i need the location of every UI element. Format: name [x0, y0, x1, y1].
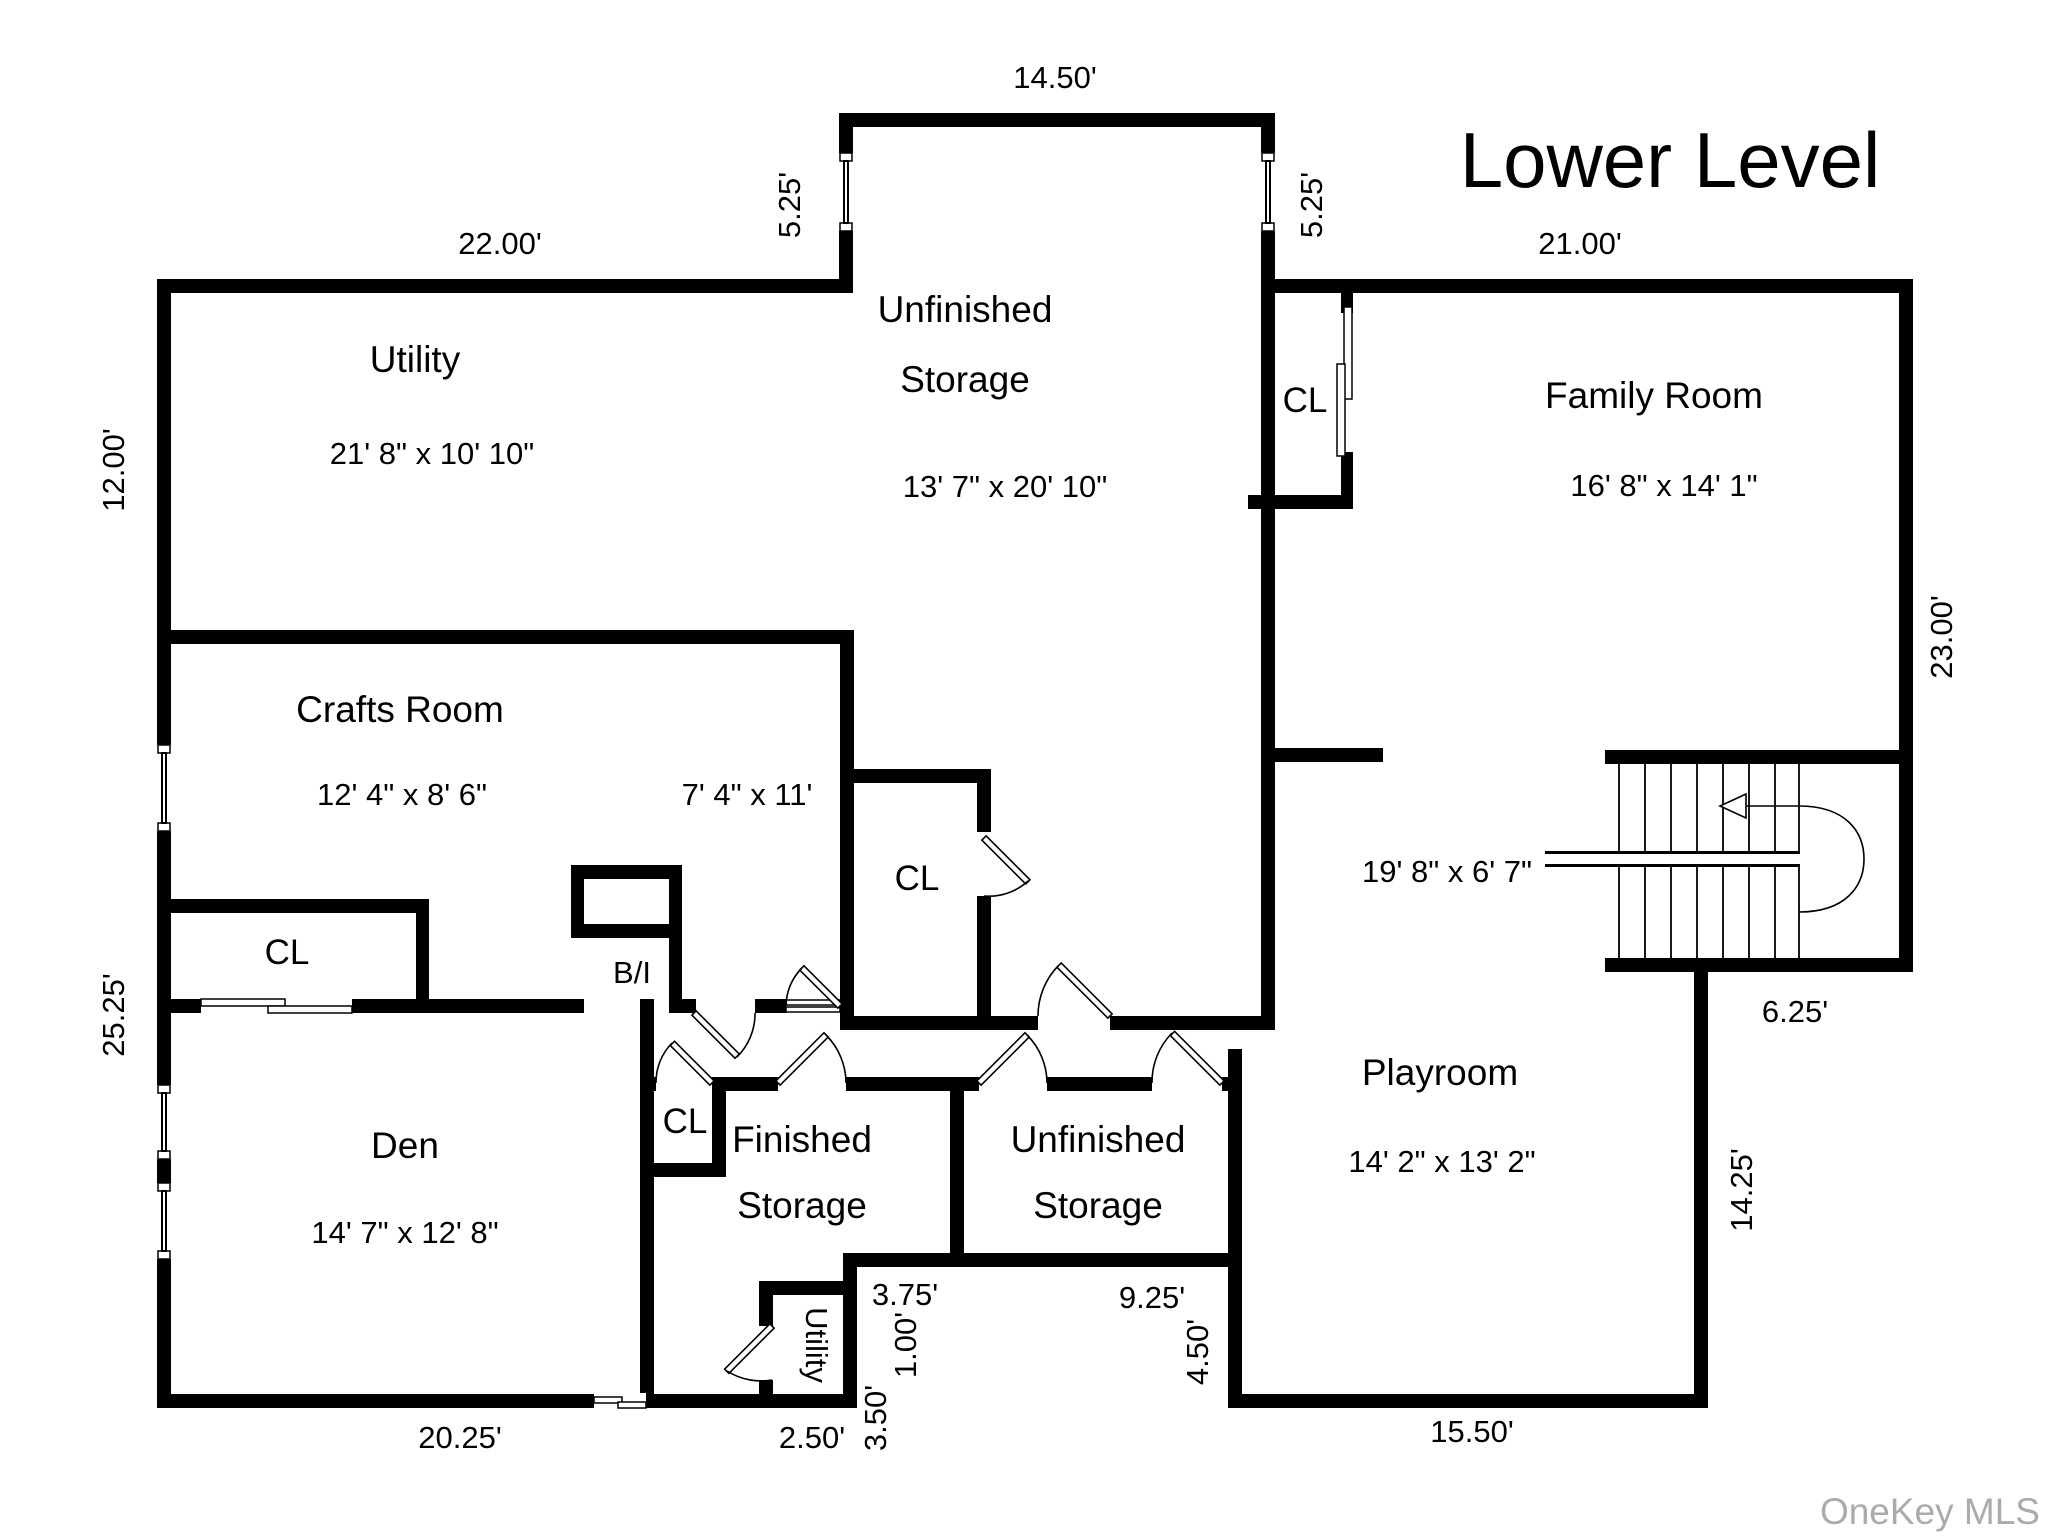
dim-storage-top: 14.50': [1013, 60, 1097, 95]
wall-utilcl-right: [843, 1281, 857, 1408]
wall-mid-vertical: [1261, 279, 1275, 1030]
area-7x11-dims: 7' 4" x 11': [682, 777, 813, 812]
staircase: [1545, 764, 1864, 958]
dim-storage-bottom-right: 9.25': [1119, 1280, 1185, 1315]
utility-room-label: Utility: [370, 339, 461, 380]
closet-family-label: CL: [1283, 381, 1328, 420]
door-unfinished-right: [1152, 1031, 1224, 1085]
finished-storage-label-2: Storage: [737, 1185, 867, 1226]
unfinished-storage-label-2: Storage: [1033, 1185, 1163, 1226]
dim-storage-side: 4.50': [1180, 1319, 1215, 1385]
door-finished-storage: [776, 1033, 846, 1085]
wall-stair-bottom: [1605, 958, 1913, 972]
storage-upper-label-2: Storage: [900, 359, 1030, 400]
wall-storage-divider: [950, 1077, 964, 1261]
stair-turn-curve: [1799, 806, 1864, 912]
dim-notch-right: 5.25': [1294, 172, 1329, 238]
storage-upper-label-1: Unfinished: [878, 289, 1053, 330]
wall-craftscl-top: [157, 899, 429, 913]
wall-dencl-right: [712, 1077, 726, 1177]
window-den-left-2: [156, 1183, 172, 1259]
page-title: Lower Level: [1460, 116, 1881, 204]
dim-stair-width: 6.25': [1762, 994, 1828, 1029]
wall-storage-top: [839, 113, 1275, 127]
family-room-label: Family Room: [1545, 375, 1763, 416]
dim-family-top: 21.00': [1538, 226, 1622, 261]
wall-bottom: [157, 1394, 857, 1408]
watermark: OneKey MLS: [1820, 1491, 2040, 1532]
wall-utilcl-left-a: [759, 1281, 773, 1326]
window-notch-left: [838, 153, 854, 231]
closet-mid-label: CL: [895, 859, 940, 898]
closet-crafts-label: CL: [265, 933, 310, 972]
window-den-left-1: [156, 1085, 172, 1159]
utility-closet-label: Utility: [799, 1307, 834, 1383]
wall-crafts-right: [840, 630, 854, 1030]
built-in-label: B/I: [613, 955, 651, 990]
window-crafts-left: [156, 745, 172, 831]
window-notch-right: [1260, 153, 1276, 231]
wall-playroom-right: [1694, 958, 1708, 1408]
hall-dims: 19' 8" x 6' 7": [1362, 854, 1532, 889]
wall-crafts-top: [157, 630, 854, 644]
wall-clmid-top: [840, 769, 991, 783]
storage-upper-dims: 13' 7" x 20' 10": [903, 469, 1107, 504]
slider-crafts-closet: [201, 998, 352, 1014]
slider-family-closet: [1337, 307, 1354, 456]
unfinished-storage-label-1: Unfinished: [1011, 1119, 1186, 1160]
family-room-dims: 16' 8" x 14' 1": [1570, 468, 1757, 503]
playroom-label: Playroom: [1362, 1052, 1518, 1093]
finished-storage-label-1: Finished: [732, 1119, 872, 1160]
door-hall: [1038, 963, 1112, 1018]
den-label: Den: [371, 1125, 439, 1166]
built-in-box: [571, 865, 682, 879]
door-utility-closet: [725, 1324, 774, 1381]
dim-den-bottom: 20.25': [418, 1420, 502, 1455]
wall-utilcl-top: [759, 1281, 857, 1295]
wall-craftscl-right: [416, 899, 429, 1013]
crafts-room-dims: 12' 4" x 8' 6": [317, 777, 487, 812]
wall-storage-low-right: [1228, 1049, 1242, 1408]
door-den: [692, 1011, 755, 1058]
dim-playroom-bottom: 15.50': [1430, 1414, 1514, 1449]
wall-dencl-bottom: [640, 1163, 726, 1177]
window-den-bottom: [594, 1393, 646, 1409]
wall-playroom-bottom: [1228, 1394, 1708, 1408]
dim-left-upper: 12.00': [96, 428, 131, 512]
closet-den-label: CL: [663, 1102, 708, 1141]
door-mid-closet: [982, 836, 1030, 896]
door-unfinished-left: [977, 1033, 1047, 1085]
door-den-closet: [656, 1041, 714, 1085]
dim-right-side: 23.00': [1924, 595, 1959, 679]
dim-utility-closet-bottom: 2.50': [779, 1420, 845, 1455]
utility-room-dims: 21' 8" x 10' 10": [330, 436, 534, 471]
door-crafts-area: [786, 966, 842, 1012]
playroom-dims: 14' 2" x 13' 2": [1348, 1144, 1535, 1179]
wall-clmid-bottom: [840, 1016, 991, 1030]
crafts-room-label: Crafts Room: [296, 689, 504, 730]
wall-right: [1899, 279, 1913, 972]
floor-plan: Lower Level 14.50' 22.00' 21.00' 5.25' 5…: [0, 0, 2048, 1536]
wall-utility-top: [157, 279, 853, 293]
wall-den-right: [640, 999, 654, 1408]
dim-left-lower: 25.25': [96, 973, 131, 1057]
dim-utility-top: 22.00': [458, 226, 542, 261]
den-dims: 14' 7" x 12' 8": [311, 1215, 498, 1250]
wall-stair-top: [1605, 750, 1913, 764]
wall-stub: [1261, 748, 1383, 762]
dim-playroom-side: 14.25': [1724, 1148, 1759, 1232]
dim-utility-closet-side: 3.50': [858, 1385, 893, 1451]
dim-storage-jog: 1.00': [888, 1312, 923, 1378]
stair-landing-divider: [1545, 851, 1800, 854]
wall-family-top: [1261, 279, 1913, 293]
wall-storage-low-bottom: [843, 1253, 1242, 1267]
dim-storage-bottom-left: 3.75': [872, 1277, 938, 1312]
dim-notch-left: 5.25': [772, 172, 807, 238]
